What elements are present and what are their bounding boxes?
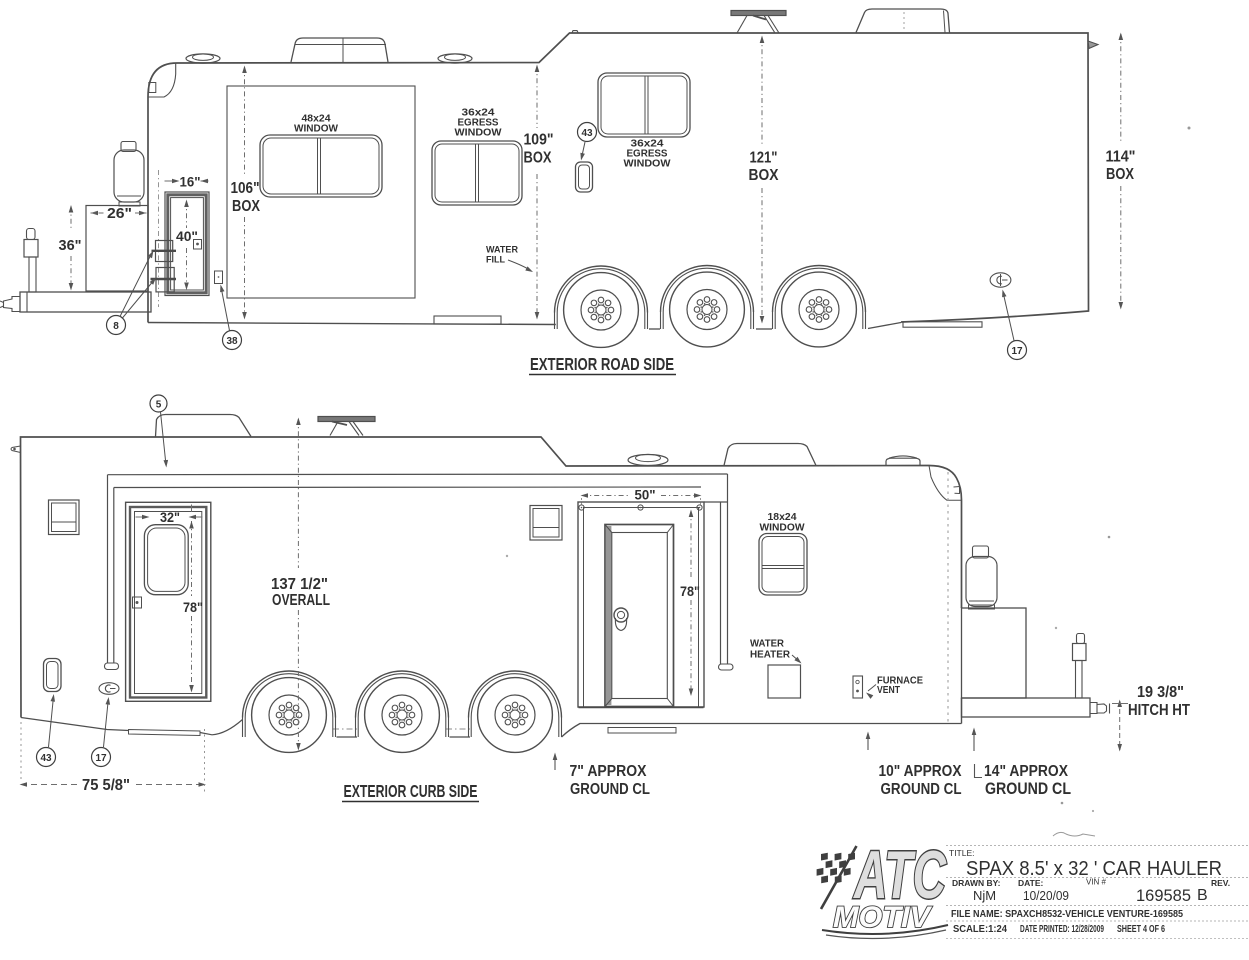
svg-text:114": 114" [1106,149,1136,166]
svg-text:HEATER: HEATER [750,649,790,661]
svg-text:26": 26" [107,205,132,222]
svg-text:EXTERIOR ROAD SIDE: EXTERIOR ROAD SIDE [530,354,674,374]
svg-text:75 5/8": 75 5/8" [82,777,130,794]
svg-text:36": 36" [59,237,82,254]
svg-text:137 1/2": 137 1/2" [271,576,328,593]
svg-text:SHEET 4 OF 6: SHEET 4 OF 6 [1117,924,1165,935]
svg-text:14" APPROX: 14" APPROX [984,763,1068,780]
svg-text:BOX: BOX [232,198,261,215]
svg-text:109": 109" [524,132,554,149]
svg-text:DATE:: DATE: [1018,878,1044,888]
svg-text:VENT: VENT [877,684,900,696]
svg-text:78": 78" [183,599,203,615]
svg-text:SCALE:1:24: SCALE:1:24 [953,924,1007,935]
svg-text:BOX: BOX [524,150,553,167]
svg-text:7" APPROX: 7" APPROX [570,763,647,780]
svg-text:GROUND CL: GROUND CL [985,780,1071,798]
svg-text:WINDOW: WINDOW [294,123,338,135]
svg-text:OVERALL: OVERALL [272,592,330,609]
svg-text:43: 43 [581,128,593,139]
svg-text:121": 121" [750,150,778,167]
svg-text:MOTIV: MOTIV [833,901,933,934]
svg-text:BOX: BOX [749,167,780,184]
svg-text:HITCH HT: HITCH HT [1128,702,1190,719]
svg-text:10/20/09: 10/20/09 [1023,888,1069,903]
svg-text:38: 38 [226,336,238,347]
svg-text:VIN #: VIN # [1086,878,1107,887]
svg-text:43: 43 [40,753,52,764]
svg-text:EXTERIOR CURB SIDE: EXTERIOR CURB SIDE [344,781,478,801]
svg-text:8: 8 [113,321,119,332]
svg-text:FILE NAME: SPAXCH8532-VEHICLE: FILE NAME: SPAXCH8532-VEHICLE VENTURE-16… [951,909,1183,920]
svg-text:17: 17 [1011,346,1023,357]
svg-text:TITLE:: TITLE: [949,848,975,858]
svg-text:GROUND CL: GROUND CL [881,781,962,798]
svg-text:19 3/8": 19 3/8" [1137,684,1184,701]
svg-text:FILL: FILL [486,255,505,266]
svg-text:DATE PRINTED: 12/28/2009: DATE PRINTED: 12/28/2009 [1020,924,1104,935]
svg-text:WINDOW: WINDOW [624,158,671,170]
svg-text:REV.: REV. [1211,878,1230,888]
svg-text:DRAWN BY:: DRAWN BY: [952,878,1001,888]
svg-text:BOX: BOX [1106,166,1135,183]
svg-text:WINDOW: WINDOW [455,127,502,139]
svg-text:GROUND CL: GROUND CL [570,781,650,798]
svg-text:WINDOW: WINDOW [760,522,805,534]
svg-text:10" APPROX: 10" APPROX [879,763,962,780]
svg-text:106": 106" [231,180,260,197]
svg-text:40": 40" [176,229,198,244]
svg-text:B: B [1197,887,1208,904]
svg-text:50": 50" [635,487,656,503]
svg-text:17: 17 [95,753,107,764]
svg-text:78": 78" [680,583,700,599]
svg-text:5: 5 [156,399,162,410]
svg-text:NjM: NjM [973,888,996,903]
svg-text:16": 16" [180,174,201,190]
svg-text:169585: 169585 [1136,886,1191,905]
svg-text:32": 32" [160,509,180,525]
